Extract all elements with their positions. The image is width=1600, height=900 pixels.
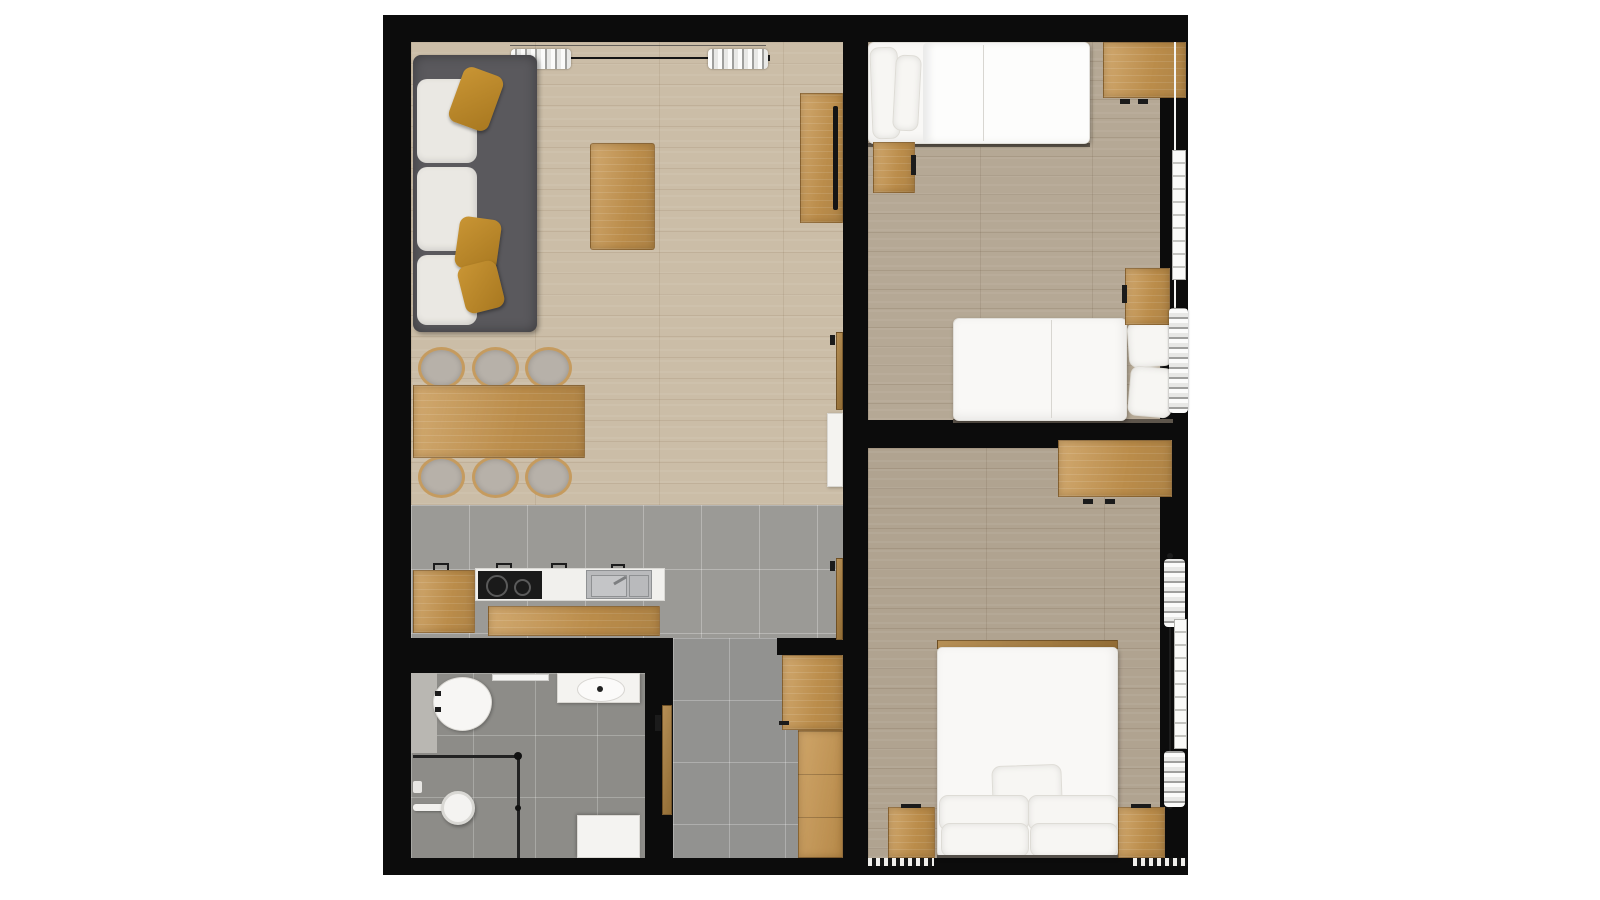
bathroom-door-handle <box>655 715 661 731</box>
bed1-duvet-fold <box>983 45 984 141</box>
shower-glass-horizontal <box>413 755 519 758</box>
shower-tray <box>577 815 640 858</box>
dining-table <box>413 385 585 458</box>
shower-head <box>441 791 475 825</box>
burner-small <box>514 579 531 596</box>
divider-wall-vertical <box>843 42 868 858</box>
nightstand-right-handle <box>1131 804 1151 808</box>
burner-large <box>486 575 508 597</box>
tv-screen <box>833 106 838 210</box>
dining-chair-top-1 <box>418 347 465 389</box>
nightstand-left <box>888 807 935 858</box>
bedroom2-curtain-bunch-top <box>1164 559 1185 627</box>
floor-plan-canvas <box>0 0 1600 900</box>
kitchen-bathroom-wall <box>411 638 673 673</box>
kitchen-cabinet-left <box>413 570 475 633</box>
desk2-handle-1 <box>1083 499 1093 504</box>
bed2-mattress <box>953 318 1127 421</box>
nightstand-right <box>1118 807 1165 858</box>
dining-chair-top-3 <box>525 347 572 389</box>
kitchen-island <box>488 606 660 636</box>
wardrobe-upper <box>782 655 843 730</box>
dining-chair-bottom-3 <box>525 456 572 498</box>
bed2-pillow-1 <box>1126 320 1173 369</box>
bedroom1-curtain-bunch <box>1169 308 1188 413</box>
nightstand-left-handle <box>901 804 921 808</box>
bathroom-sink-counter <box>557 673 640 703</box>
nightstand2 <box>1125 268 1170 325</box>
curtain-bunch-top-right <box>708 49 768 69</box>
bedroom2-radiator <box>1174 619 1187 749</box>
hallway-top-wall <box>777 638 843 655</box>
toilet-flush-mark-1 <box>435 691 441 696</box>
basin-drain <box>597 686 603 692</box>
double-bed-pillow-3 <box>941 823 1029 857</box>
desk1-handle-1 <box>1120 99 1130 104</box>
tall-white-cabinet <box>827 413 843 487</box>
bed2-pillow-2 <box>1127 365 1175 419</box>
nightstand1 <box>873 142 915 193</box>
coffee-table <box>590 143 655 250</box>
bedroom1-door-leaf <box>836 332 843 410</box>
apartment-floor-plan <box>383 15 1188 875</box>
desk1-handle-2 <box>1138 99 1148 104</box>
towel-rail <box>492 674 549 681</box>
dining-chair-bottom-2 <box>472 456 519 498</box>
bedroom2-curtain-bunch-bottom <box>1164 751 1185 807</box>
double-bed-headboard-line <box>937 855 1118 858</box>
nightstand2-handle <box>1122 285 1127 303</box>
bedroom1-door-handle <box>830 335 835 345</box>
bedroom2-door-handle <box>830 561 835 571</box>
wardrobe-handle <box>779 721 789 725</box>
cooktop <box>478 571 542 599</box>
threshold-marks-right <box>1133 858 1187 866</box>
window-glazing-line <box>510 45 766 46</box>
shower-mixer <box>413 781 422 793</box>
shower-glass-joint <box>514 752 522 760</box>
bed1-duvet <box>923 43 1089 143</box>
bed2-duvet-fold <box>1051 320 1052 418</box>
kitchen-sink <box>586 570 652 599</box>
wardrobe-lower <box>798 730 843 858</box>
sink-drainer <box>629 575 649 597</box>
double-bed-pillow-4 <box>1030 823 1118 857</box>
threshold-marks-left <box>868 858 934 866</box>
bed1-pillow-2 <box>892 54 922 131</box>
nightstand1-handle <box>911 155 916 175</box>
shower-glass-handle <box>515 805 521 811</box>
dining-chair-top-2 <box>472 347 519 389</box>
cistern-panel <box>411 673 437 753</box>
desk2-handle-2 <box>1105 499 1115 504</box>
dining-chair-bottom-1 <box>418 456 465 498</box>
bedroom1-radiator <box>1172 150 1186 280</box>
toilet-flush-mark-2 <box>435 707 441 712</box>
bathroom-door-leaf <box>662 705 672 815</box>
bedroom2-desk <box>1058 440 1172 497</box>
bedroom2-door-leaf <box>836 558 843 640</box>
